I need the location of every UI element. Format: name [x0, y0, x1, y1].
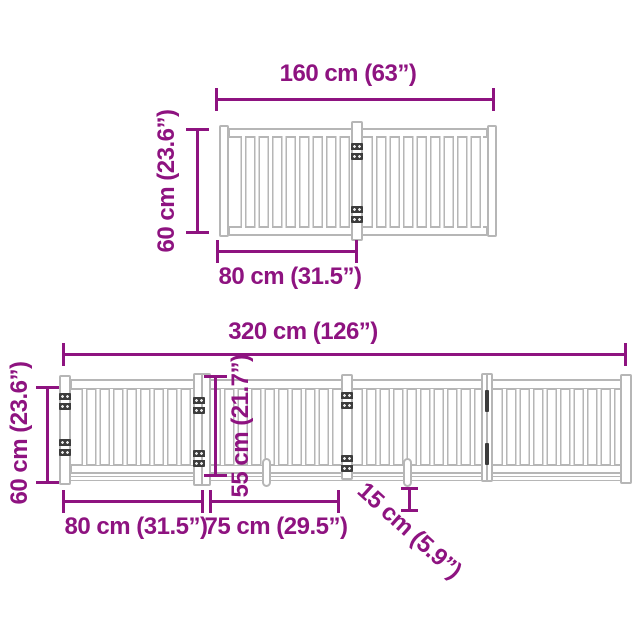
- dim-label-top-height: 60 cm (23.6”): [155, 110, 179, 253]
- dim-line-door-height: [214, 375, 217, 477]
- dim-label-first-panel: 80 cm (31.5”): [65, 515, 208, 539]
- dim-line-top-width: [215, 98, 495, 101]
- dim-label-bottom-total-width: 320 cm (126”): [228, 320, 378, 344]
- dimension-diagram-canvas: 160 cm (63”) 60 cm (23.6”) 80 cm (31.5”)…: [0, 0, 640, 640]
- dim-line-bottom-height: [46, 386, 49, 484]
- dim-line-bottom-total-width: [62, 353, 627, 356]
- dim-label-bottom-height: 60 cm (23.6”): [8, 362, 32, 505]
- dim-line-first-panel: [62, 500, 204, 503]
- dim-line-top-height: [196, 128, 199, 234]
- dim-label-top-panel-width: 80 cm (31.5”): [219, 265, 362, 289]
- dimension-annotations-layer: 160 cm (63”) 60 cm (23.6”) 80 cm (31.5”)…: [0, 0, 640, 640]
- dim-line-top-panel-width: [216, 250, 358, 253]
- dim-line-foot: [408, 487, 411, 512]
- dim-label-top-width: 160 cm (63”): [280, 62, 417, 86]
- dim-label-second-panel: 75 cm (29.5”): [205, 515, 348, 539]
- dim-label-door-height: 55 cm (21.7”): [229, 355, 253, 498]
- dim-line-second-panel: [209, 500, 340, 503]
